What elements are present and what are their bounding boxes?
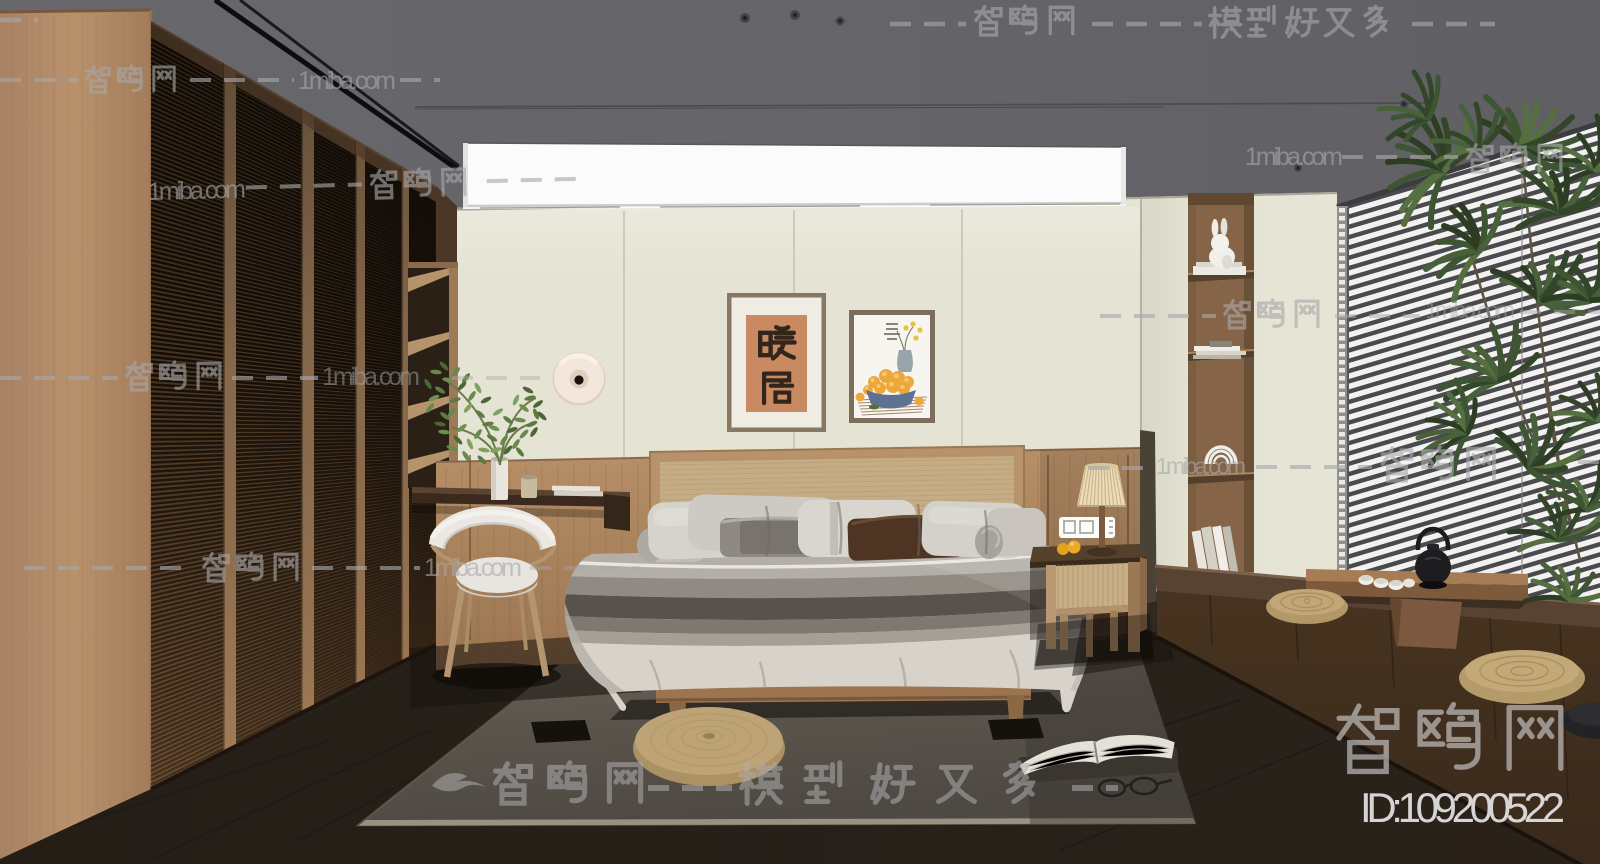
svg-text:1miba.com: 1miba.com — [298, 67, 396, 95]
svg-text:1miba.com: 1miba.com — [322, 363, 420, 391]
svg-text:1miba.com: 1miba.com — [1425, 297, 1515, 323]
svg-text:1miba.com: 1miba.com — [1156, 453, 1246, 479]
svg-text:1miba.com: 1miba.com — [148, 175, 247, 206]
svg-text:ID:109200522: ID:109200522 — [1360, 784, 1565, 831]
svg-text:1miba.com: 1miba.com — [1245, 143, 1343, 171]
svg-text:1miba.com: 1miba.com — [424, 554, 522, 582]
